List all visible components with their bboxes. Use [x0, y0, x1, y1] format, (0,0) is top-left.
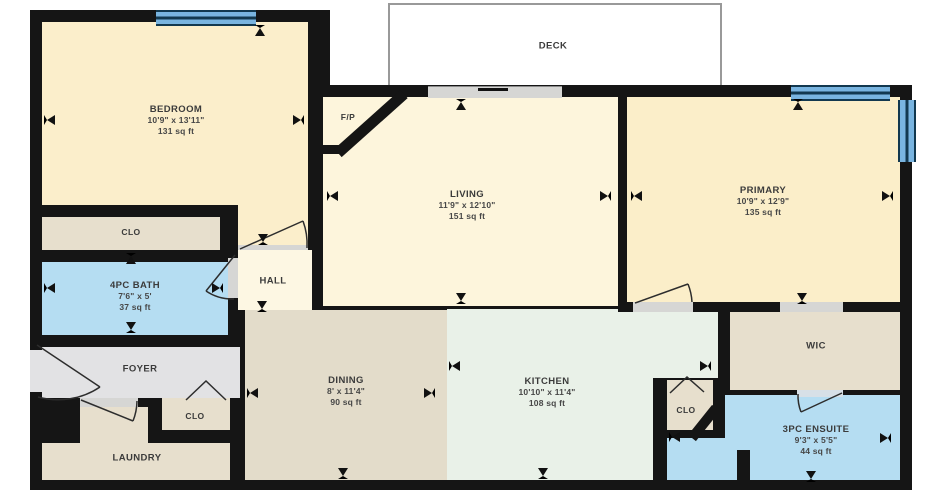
arrow-down-icon: [538, 468, 548, 479]
room-label-primary: PRIMARY 10'9" x 12'9" 135 sq ft: [737, 185, 790, 217]
arrow-right-icon: [882, 191, 893, 201]
room-label-closet-foyer: CLO: [185, 411, 204, 421]
room-dims: 9'3" x 5'5": [783, 436, 850, 446]
room-name: 3PC ENSUITE: [783, 424, 850, 435]
room-label-dining: DINING 8' x 11'4" 90 sq ft: [327, 375, 365, 407]
room-name: PRIMARY: [740, 185, 786, 196]
arrow-right-icon: [212, 283, 223, 293]
room-name: DECK: [539, 40, 568, 51]
room-label-hall: HALL: [260, 275, 287, 286]
bedroom-door-arc: [303, 221, 307, 248]
room-dims: 7'6" x 5': [110, 292, 160, 302]
bedroom-door: [240, 221, 303, 249]
laundry-door: [81, 400, 133, 421]
arrow-left-icon: [669, 432, 680, 442]
room-name: LAUNDRY: [113, 452, 162, 463]
room-name: 4PC BATH: [110, 280, 160, 291]
room-name: CLO: [121, 227, 140, 237]
arrow-down-icon: [257, 301, 267, 312]
arrow-right-icon: [880, 433, 891, 443]
arrow-right-icon: [293, 115, 304, 125]
room-area: 151 sq ft: [439, 211, 496, 221]
arrow-left-icon: [247, 388, 258, 398]
arrow-right-icon: [424, 388, 435, 398]
arrow-down-icon: [338, 468, 348, 479]
ensuite-door-arc: [798, 394, 801, 412]
arrow-left-icon: [44, 115, 55, 125]
room-label-wic: WIC: [806, 340, 826, 351]
room-name: WIC: [806, 340, 826, 351]
arrow-down-icon: [258, 234, 268, 245]
room-dims: 8' x 11'4": [327, 387, 365, 397]
arrow-right-icon: [600, 191, 611, 201]
room-name: KITCHEN: [524, 376, 569, 387]
room-label-kitchen: KITCHEN 10'10" x 11'4" 108 sq ft: [519, 376, 576, 408]
room-label-bath: 4PC BATH 7'6" x 5' 37 sq ft: [110, 280, 160, 312]
room-area: 135 sq ft: [737, 207, 790, 217]
arrow-down-icon: [456, 293, 466, 304]
room-label-deck: DECK: [539, 40, 568, 51]
room-name: FOYER: [123, 363, 158, 374]
arrow-up-icon: [126, 253, 136, 264]
entry-door: [37, 345, 100, 387]
arrow-right-icon: [700, 361, 711, 371]
arrow-down-icon: [797, 293, 807, 304]
arrow-left-icon: [327, 191, 338, 201]
room-area: 90 sq ft: [327, 397, 365, 407]
ensuite-door: [801, 393, 842, 412]
arrow-up-icon: [255, 25, 265, 36]
room-name: CLO: [676, 405, 695, 415]
floor-plan: BEDROOM 10'9" x 13'11" 131 sq ft LIVING …: [0, 0, 930, 500]
laundry-door-arc: [133, 401, 137, 421]
room-label-ensuite: 3PC ENSUITE 9'3" x 5'5" 44 sq ft: [783, 424, 850, 456]
closet-angled-wall: [692, 408, 716, 438]
room-label-foyer: FOYER: [123, 363, 158, 374]
arrow-down-icon: [806, 471, 816, 482]
room-label-closet-bedroom: CLO: [121, 227, 140, 237]
room-name: CLO: [185, 411, 204, 421]
arrow-left-icon: [631, 191, 642, 201]
room-label-living: LIVING 11'9" x 12'10" 151 sq ft: [439, 189, 496, 221]
arrow-down-icon: [126, 322, 136, 333]
foyer-closet-bifold-door: [186, 381, 226, 400]
room-name: BEDROOM: [150, 104, 202, 115]
arrow-up-icon: [456, 99, 466, 110]
room-dims: 11'9" x 12'10": [439, 201, 496, 211]
room-area: 108 sq ft: [519, 398, 576, 408]
room-area: 131 sq ft: [148, 126, 205, 136]
room-dims: 10'9" x 13'11": [148, 116, 205, 126]
room-dims: 10'10" x 11'4": [519, 388, 576, 398]
arrow-left-icon: [449, 361, 460, 371]
fireplace-angled-wall: [338, 94, 404, 153]
kitchen-closet-bifold-door: [670, 377, 704, 393]
arrow-up-icon: [793, 99, 803, 110]
room-name: F/P: [341, 112, 355, 122]
room-name: DINING: [328, 375, 364, 386]
room-area: 37 sq ft: [110, 302, 160, 312]
primary-door-arc: [688, 284, 692, 302]
room-name: LIVING: [450, 189, 484, 200]
arrow-left-icon: [44, 283, 55, 293]
room-label-laundry: LAUNDRY: [113, 452, 162, 463]
room-dims: 10'9" x 12'9": [737, 197, 790, 207]
room-name: HALL: [260, 275, 287, 286]
room-label-bedroom: BEDROOM 10'9" x 13'11" 131 sq ft: [148, 104, 205, 136]
room-area: 44 sq ft: [783, 446, 850, 456]
room-label-closet-kitchen: CLO: [676, 405, 695, 415]
primary-door: [635, 284, 688, 303]
room-label-fireplace: F/P: [341, 112, 355, 122]
entry-door-arc: [38, 387, 100, 400]
